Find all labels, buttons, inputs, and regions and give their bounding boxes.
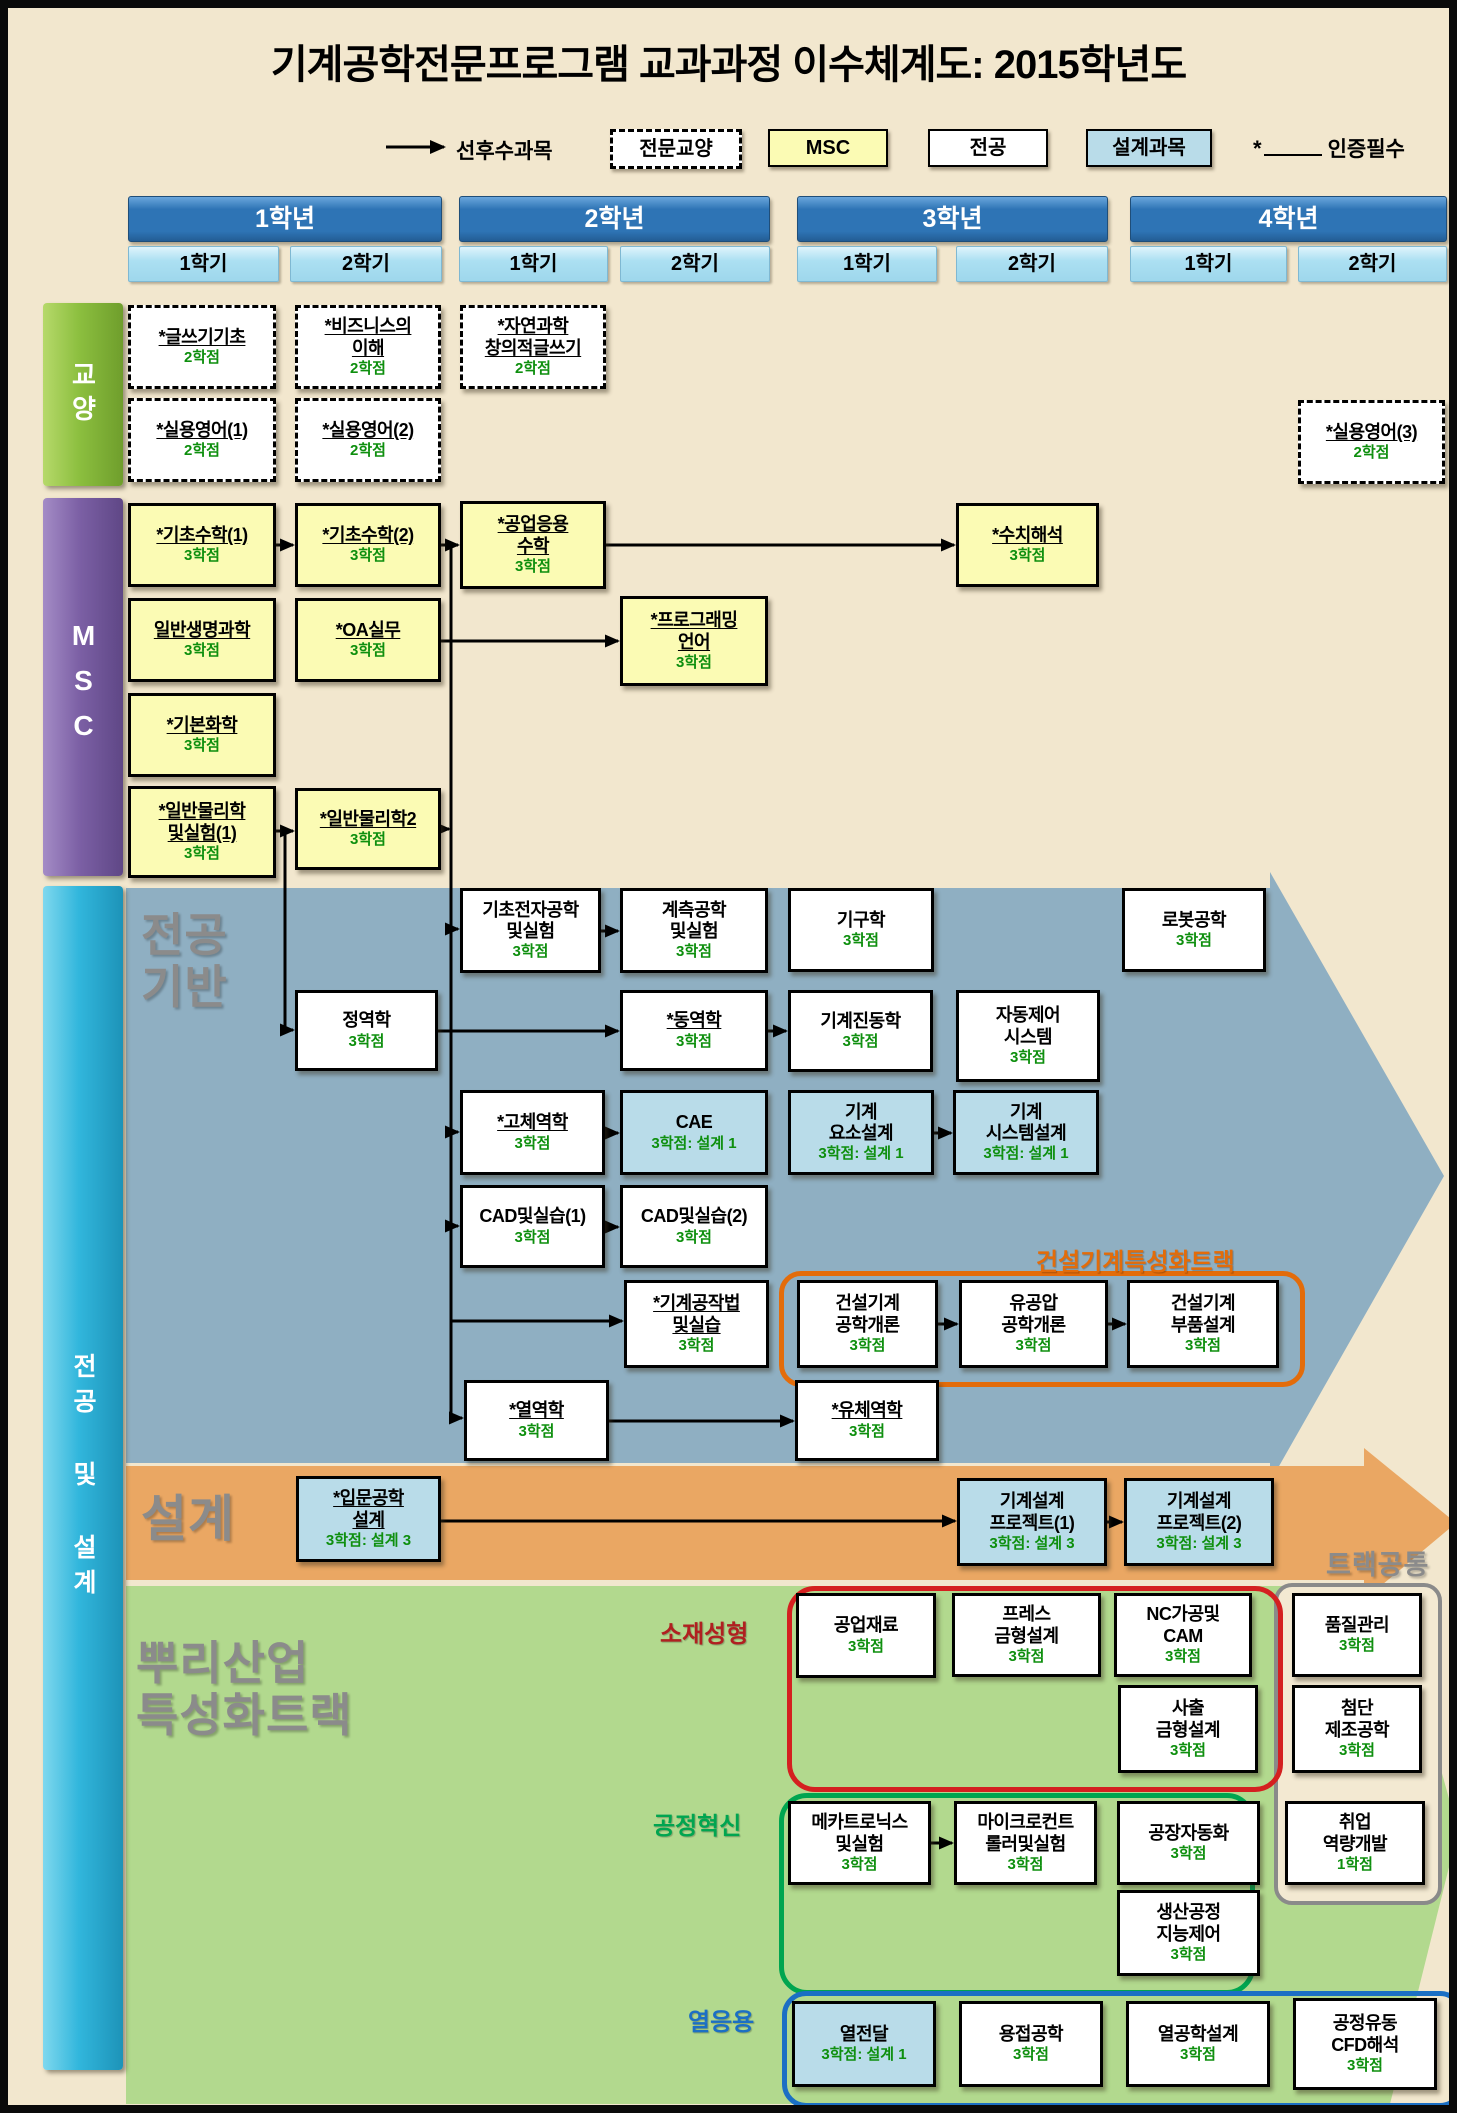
course-name: 자동제어시스템 <box>996 1005 1060 1047</box>
course-credit: 3학점 <box>1185 1337 1221 1355</box>
course-credit: 3학점 <box>679 1337 715 1355</box>
course-credit: 3학점 <box>1010 1049 1046 1067</box>
course-credit: 3학점 <box>850 1337 886 1355</box>
course-oa[interactable]: *OA실무3학점 <box>295 598 441 682</box>
course-constparts[interactable]: 건설기계부품설계3학점 <box>1127 1280 1279 1368</box>
course-cfd[interactable]: 공정유동CFD해석3학점 <box>1293 1998 1437 2090</box>
year-header-2: 2학년 <box>459 196 770 242</box>
course-credit: 3학점: 설계 3 <box>326 1532 411 1550</box>
course-shop[interactable]: *기계공작법및실습3학점 <box>624 1280 769 1368</box>
course-name: 용접공학 <box>999 2024 1063 2045</box>
course-name: *프로그래밍언어 <box>651 610 738 652</box>
group-label-const-track: 건설기계특성화트랙 <box>1036 1242 1235 1277</box>
course-name: *열역학 <box>509 1400 564 1421</box>
course-credit: 1학점 <box>1337 1856 1373 1874</box>
course-name: 메카트로닉스및실험 <box>811 1812 907 1854</box>
course-quality[interactable]: 품질관리3학점 <box>1292 1593 1422 1677</box>
course-name: 기계설계프로젝트(1) <box>990 1491 1075 1533</box>
semester-2-2: 2학기 <box>620 246 770 282</box>
course-name: *글쓰기기초 <box>159 327 246 348</box>
course-introdesign[interactable]: *입문공학설계3학점: 설계 3 <box>296 1476 441 1562</box>
course-statics[interactable]: 정역학3학점 <box>295 990 438 1071</box>
year-header-3: 3학년 <box>797 196 1108 242</box>
course-name: 열전달 <box>840 2024 888 2045</box>
course-credit: 3학점 <box>843 1033 879 1051</box>
course-credit: 3학점 <box>184 737 220 755</box>
course-name: 기계설계프로젝트(2) <box>1157 1491 1242 1533</box>
course-credit: 2학점 <box>184 349 220 367</box>
course-credit: 3학점 <box>515 1135 551 1153</box>
group-label-thermal-application: 열응용 <box>688 2002 754 2037</box>
course-credit: 3학점 <box>1339 1637 1375 1655</box>
course-name: CAD및실습(1) <box>479 1206 585 1227</box>
course-name: 생산공정지능제어 <box>1156 1902 1220 1944</box>
course-welding[interactable]: 용접공학3학점 <box>959 2001 1103 2087</box>
course-kinematics[interactable]: 기구학3학점 <box>788 888 934 972</box>
course-credit: 3학점 <box>1010 547 1046 565</box>
course-credit: 3학점 <box>1176 932 1212 950</box>
course-credit: 3학점 <box>676 1229 712 1247</box>
semester-3-1: 1학기 <box>797 246 937 282</box>
course-name: 공장자동화 <box>1148 1823 1228 1844</box>
course-name: *입문공학설계 <box>333 1488 404 1530</box>
course-factory[interactable]: 공장자동화3학점 <box>1117 1801 1260 1885</box>
course-indmat[interactable]: 공업재료3학점 <box>796 1593 936 1678</box>
course-name: *비즈니스의이해 <box>325 316 412 358</box>
course-credit: 3학점: 설계 1 <box>651 1135 736 1153</box>
course-credit: 2학점 <box>1354 444 1390 462</box>
course-name: 마이크로컨트롤러및실험 <box>977 1812 1073 1854</box>
semester-4-1: 1학기 <box>1130 246 1287 282</box>
course-cae[interactable]: CAE3학점: 설계 1 <box>620 1090 768 1175</box>
certified-star: * <box>1253 136 1262 161</box>
course-credit: 3학점 <box>515 1229 551 1247</box>
course-elements[interactable]: 기계요소설계3학점: 설계 1 <box>788 1090 934 1175</box>
course-cad2[interactable]: CAD및실습(2)3학점 <box>620 1185 768 1268</box>
course-autocontrol[interactable]: 자동제어시스템3학점 <box>956 990 1100 1082</box>
course-injection[interactable]: 사출금형설계3학점 <box>1118 1685 1258 1773</box>
course-business[interactable]: *비즈니스의이해2학점 <box>295 305 441 389</box>
course-credit: 3학점 <box>1170 1742 1206 1760</box>
sidebar-major-design: 전공 및 설계 <box>43 886 123 2070</box>
course-name: *기초수학(1) <box>156 525 247 546</box>
course-credit: 3학점 <box>515 558 551 576</box>
course-name: *자연과학창의적글쓰기 <box>485 316 581 358</box>
course-hydraulic[interactable]: 유공압공학개론3학점 <box>959 1280 1108 1368</box>
course-thermdesign[interactable]: 열공학설계3학점 <box>1126 2001 1270 2087</box>
course-credit: 3학점: 설계 3 <box>1156 1535 1241 1553</box>
legend-item-design: 설계과목 <box>1086 129 1212 167</box>
course-credit: 3학점: 설계 3 <box>989 1535 1074 1553</box>
course-credit: 3학점 <box>184 642 220 660</box>
course-name: 첨단제조공학 <box>1325 1698 1389 1740</box>
course-heattrans[interactable]: 열전달3학점: 설계 1 <box>792 2001 936 2087</box>
course-credit: 3학점 <box>184 845 220 863</box>
legend-item-msc: MSC <box>768 129 888 167</box>
course-credit: 2학점 <box>350 442 386 460</box>
course-proj1[interactable]: 기계설계프로젝트(1)3학점: 설계 3 <box>957 1478 1107 1566</box>
year-header-4: 4학년 <box>1130 196 1447 242</box>
course-name: 건설기계부품설계 <box>1171 1293 1235 1335</box>
course-credit: 3학점: 설계 1 <box>821 2046 906 2064</box>
curriculum-flowchart: 기계공학전문프로그램 교과과정 이수체계도: 2015학년도 선후수과목 전문교… <box>0 0 1457 2113</box>
course-credit: 3학점 <box>676 1033 712 1051</box>
course-credit: 3학점 <box>848 1638 884 1656</box>
course-name: 취업역량개발 <box>1323 1812 1387 1854</box>
course-name: 기초전자공학및실험 <box>482 900 578 942</box>
course-name: 정역학 <box>342 1010 390 1031</box>
course-engmath[interactable]: *공업응용수학3학점 <box>460 501 606 589</box>
course-name: 공업재료 <box>834 1615 898 1636</box>
course-name: 기계시스템설계 <box>986 1102 1066 1144</box>
course-name: *기본화학 <box>167 715 238 736</box>
course-name: 공정유동CFD해석 <box>1331 2013 1399 2055</box>
group-label-material-forming: 소재성형 <box>660 1614 748 1649</box>
course-credit: 3학점 <box>843 932 879 950</box>
course-name: 로봇공학 <box>1162 910 1226 931</box>
semester-3-2: 2학기 <box>956 246 1108 282</box>
course-credit: 3학점 <box>676 943 712 961</box>
course-cad1[interactable]: CAD및실습(1)3학점 <box>460 1185 605 1268</box>
course-credit: 2학점 <box>515 360 551 378</box>
course-nccam[interactable]: NC가공및CAM3학점 <box>1114 1593 1252 1677</box>
course-math1[interactable]: *기초수학(1)3학점 <box>128 503 276 587</box>
course-name: *실용영어(3) <box>1326 422 1417 443</box>
course-name: 기계진동학 <box>820 1011 900 1032</box>
semester-1-2: 2학기 <box>290 246 442 282</box>
course-credit: 2학점 <box>350 360 386 378</box>
course-math2[interactable]: *기초수학(2)3학점 <box>295 503 441 587</box>
section-label-root-track: 뿌리산업 특성화트랙 <box>136 1638 353 1741</box>
course-name: *고체역학 <box>497 1112 568 1133</box>
course-name: *기초수학(2) <box>322 525 413 546</box>
semester-1-1: 1학기 <box>128 246 279 282</box>
course-credit: 3학점 <box>849 1423 885 1441</box>
course-credit: 3학점 <box>676 654 712 672</box>
course-name: *실용영어(1) <box>156 420 247 441</box>
course-prodctrl[interactable]: 생산공정지능제어3학점 <box>1117 1890 1260 1976</box>
course-constintro[interactable]: 건설기계공학개론3학점 <box>797 1280 938 1368</box>
course-sciwriting[interactable]: *자연과학창의적글쓰기2학점 <box>460 305 606 389</box>
course-name: CAD및실습(2) <box>641 1206 747 1227</box>
course-chem[interactable]: *기본화학3학점 <box>128 693 276 777</box>
course-name: 건설기계공학개론 <box>835 1293 899 1335</box>
course-credit: 3학점 <box>842 1856 878 1874</box>
course-phys1[interactable]: *일반물리학및실험(1)3학점 <box>128 786 276 878</box>
course-eng1[interactable]: *실용영어(1)2학점 <box>128 398 276 482</box>
course-press[interactable]: 프레스금형설계3학점 <box>952 1593 1101 1677</box>
course-micro[interactable]: 마이크로컨트롤러및실험3학점 <box>954 1801 1097 1885</box>
course-solid[interactable]: *고체역학3학점 <box>460 1090 605 1175</box>
course-credit: 3학점 <box>1165 1648 1201 1666</box>
course-credit: 3학점 <box>184 547 220 565</box>
course-credit: 3학점: 설계 1 <box>818 1145 903 1163</box>
certified-label: 인증필수 <box>1328 138 1405 161</box>
course-name: *일반물리학및실험(1) <box>159 801 246 843</box>
group-label-process-innovation: 공정혁신 <box>653 1806 741 1841</box>
course-measure[interactable]: 계측공학및실험3학점 <box>620 888 768 973</box>
course-credit: 3학점 <box>1339 1742 1375 1760</box>
course-name: *OA실무 <box>336 620 401 641</box>
course-name: *유체역학 <box>832 1400 903 1421</box>
course-writing[interactable]: *글쓰기기초2학점 <box>128 305 276 389</box>
course-credit: 3학점 <box>350 642 386 660</box>
sidebar-msc: MSC <box>43 498 123 876</box>
course-numerical[interactable]: *수치해석3학점 <box>956 503 1099 587</box>
course-name: 품질관리 <box>1325 1615 1389 1636</box>
section-label-major-base: 전공 기반 <box>141 910 228 1013</box>
course-proj2[interactable]: 기계설계프로젝트(2)3학점: 설계 3 <box>1124 1478 1274 1566</box>
year-header-1: 1학년 <box>128 196 442 242</box>
course-credit: 3학점 <box>1013 2046 1049 2064</box>
course-elec[interactable]: 기초전자공학및실험3학점 <box>460 888 601 973</box>
legend-item-ge: 전문교양 <box>610 129 742 169</box>
page-title: 기계공학전문프로그램 교과과정 이수체계도: 2015학년도 <box>8 32 1449 90</box>
course-name: *동역학 <box>667 1010 722 1031</box>
sidebar-ge: 교양 <box>43 303 123 486</box>
course-eng2[interactable]: *실용영어(2)2학점 <box>295 398 441 482</box>
legend-arrow-label: 선후수과목 <box>456 135 553 165</box>
course-credit: 3학점 <box>513 943 549 961</box>
course-credit: 3학점 <box>1008 1856 1044 1874</box>
course-credit: 2학점 <box>184 442 220 460</box>
course-vibration[interactable]: 기계진동학3학점 <box>788 990 933 1072</box>
course-credit: 3학점 <box>1009 1648 1045 1666</box>
course-name: 계측공학및실험 <box>662 900 726 942</box>
course-name: 사출금형설계 <box>1156 1698 1220 1740</box>
certified-underline <box>1264 140 1322 156</box>
course-eng3[interactable]: *실용영어(3)2학점 <box>1298 400 1445 484</box>
course-advmfg[interactable]: 첨단제조공학3학점 <box>1292 1685 1422 1773</box>
semester-2-1: 1학기 <box>459 246 608 282</box>
course-credit: 3학점 <box>1180 2046 1216 2064</box>
semester-4-2: 2학기 <box>1298 246 1447 282</box>
section-label-track-common: 트랙공통 <box>1326 1550 1429 1580</box>
course-credit: 3학점: 설계 1 <box>983 1145 1068 1163</box>
course-dynamics[interactable]: *동역학3학점 <box>620 990 768 1071</box>
course-name: *수치해석 <box>992 525 1063 546</box>
course-name: 기구학 <box>837 910 885 931</box>
course-name: 유공압공학개론 <box>1001 1293 1065 1335</box>
course-credit: 3학점 <box>350 547 386 565</box>
course-credit: 3학점 <box>1016 1337 1052 1355</box>
course-name: *실용영어(2) <box>322 420 413 441</box>
course-credit: 3학점 <box>349 1033 385 1051</box>
legend-certified-note: *인증필수 <box>1253 133 1405 163</box>
course-name: 열공학설계 <box>1158 2024 1238 2045</box>
course-credit: 3학점 <box>519 1423 555 1441</box>
course-phys2[interactable]: *일반물리학23학점 <box>295 788 441 870</box>
course-robot[interactable]: 로봇공학3학점 <box>1122 888 1266 972</box>
course-name: 일반생명과학 <box>154 620 250 641</box>
course-name: *기계공작법및실습 <box>653 1293 740 1335</box>
course-credit: 3학점 <box>1171 1845 1207 1863</box>
course-career[interactable]: 취업역량개발1학점 <box>1285 1801 1425 1885</box>
course-name: 기계요소설계 <box>829 1102 893 1144</box>
course-credit: 3학점 <box>1171 1946 1207 1964</box>
course-programming[interactable]: *프로그래밍언어3학점 <box>620 596 768 686</box>
course-name: NC가공및CAM <box>1146 1604 1219 1646</box>
course-credit: 3학점 <box>350 831 386 849</box>
course-bio[interactable]: 일반생명과학3학점 <box>128 598 276 682</box>
course-credit: 3학점 <box>1347 2057 1383 2075</box>
legend-item-major: 전공 <box>928 129 1048 167</box>
course-name: *일반물리학2 <box>320 809 416 830</box>
course-thermo[interactable]: *열역학3학점 <box>464 1380 609 1461</box>
section-label-design: 설계 <box>141 1491 235 1547</box>
course-mecha[interactable]: 메카트로닉스및실험3학점 <box>788 1801 931 1885</box>
course-name: 프레스금형설계 <box>994 1604 1058 1646</box>
course-fluid[interactable]: *유체역학3학점 <box>795 1380 939 1461</box>
course-system[interactable]: 기계시스템설계3학점: 설계 1 <box>953 1090 1099 1175</box>
course-name: CAE <box>676 1112 713 1133</box>
course-name: *공업응용수학 <box>498 514 569 556</box>
